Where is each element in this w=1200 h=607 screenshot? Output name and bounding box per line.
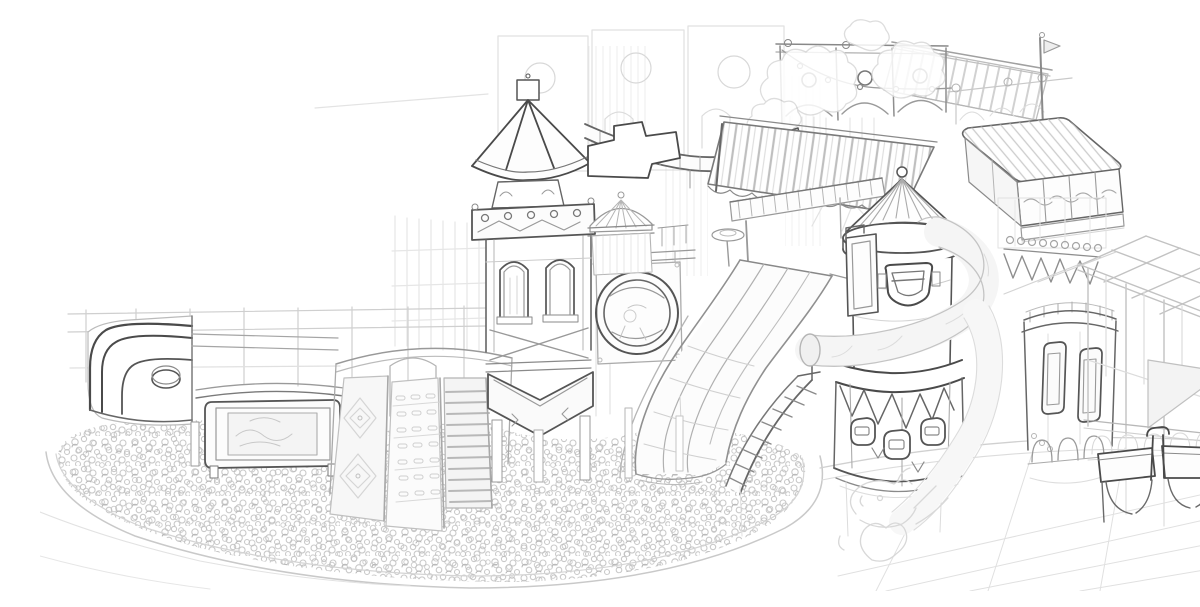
- diamond-ramp: [330, 376, 388, 521]
- play-panel: [196, 383, 344, 478]
- cage-slide-panel: [1148, 360, 1200, 428]
- round-disc: [152, 370, 180, 388]
- turret-tower: [998, 197, 1118, 483]
- playground-sketch: [40, 16, 1200, 591]
- turret-window: [1042, 342, 1066, 414]
- ladder-ramp: [444, 378, 492, 508]
- porthole-windows: [851, 418, 945, 459]
- bench-seat: [1098, 448, 1155, 482]
- holes-ramp: [386, 378, 442, 531]
- chevron-base: [488, 372, 593, 436]
- bench-seat: [1162, 446, 1200, 478]
- sketch-canvas: [40, 16, 1200, 591]
- spinner-seat: [712, 229, 744, 241]
- climb-barrel: [330, 348, 512, 531]
- slide-entry-door: [846, 234, 878, 316]
- shield-emblem: [886, 263, 933, 306]
- clouds: [747, 20, 945, 135]
- tube-opening: [800, 334, 820, 366]
